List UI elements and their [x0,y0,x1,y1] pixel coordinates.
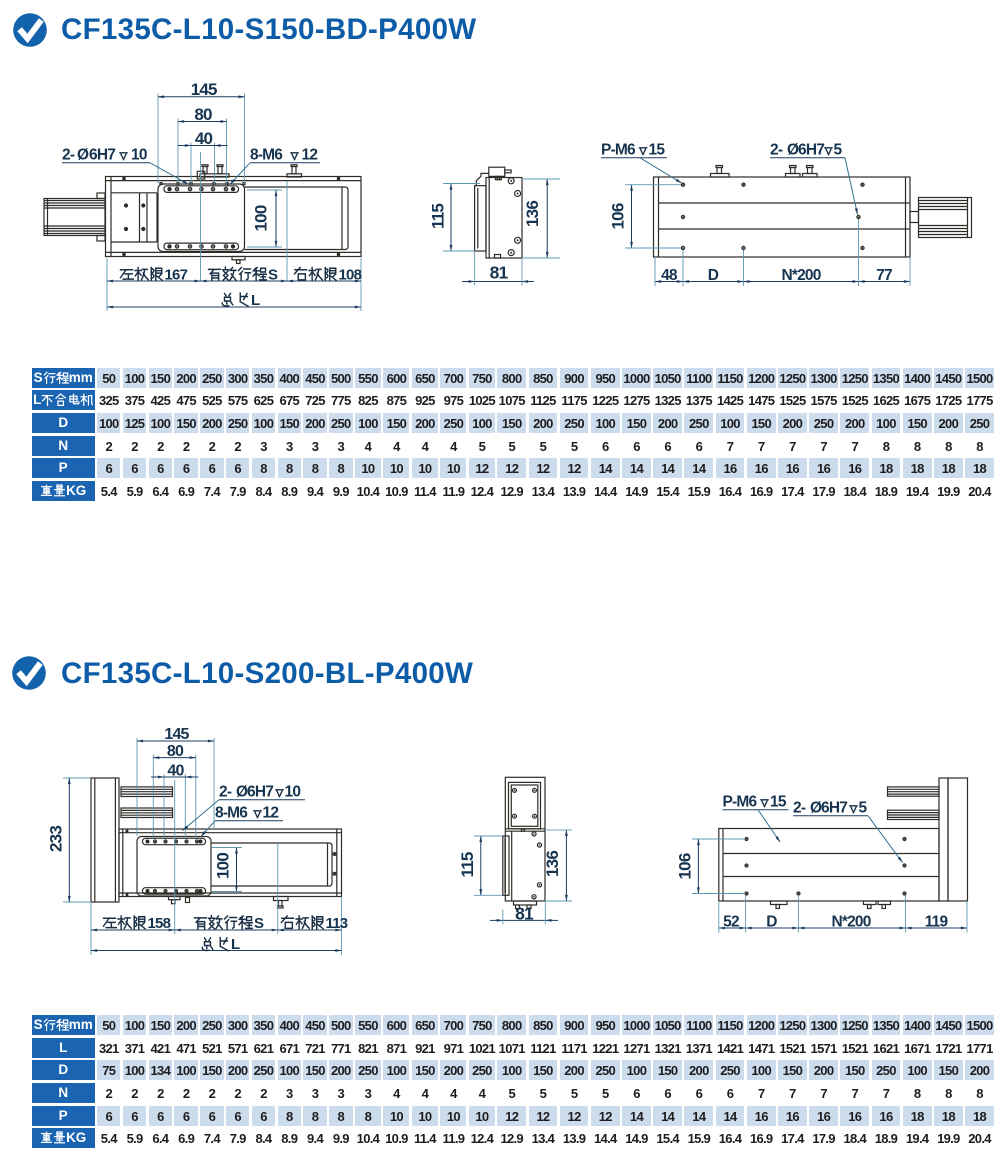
svg-text:L: L [231,936,240,953]
svg-text:108: 108 [339,267,362,284]
svg-text:100: 100 [214,853,233,879]
svg-text:Ø: Ø [77,147,89,164]
svg-text:106: 106 [609,203,628,229]
svg-text:80: 80 [194,105,212,124]
svg-text:6H7: 6H7 [89,147,115,164]
svg-text:10: 10 [131,147,147,164]
svg-text:2-: 2- [770,142,783,159]
svg-text:12: 12 [302,147,318,164]
svg-text:136: 136 [543,851,562,877]
svg-text:P-M6: P-M6 [601,142,636,159]
svg-text:5: 5 [859,800,868,817]
svg-text:81: 81 [490,263,509,283]
svg-text:106: 106 [675,853,694,879]
svg-text:6H7: 6H7 [798,142,824,159]
svg-text:S: S [254,915,264,932]
svg-text:119: 119 [925,914,949,931]
svg-text:52: 52 [723,914,739,931]
svg-text:P-M6: P-M6 [723,794,758,811]
svg-text:2-: 2- [62,147,75,164]
svg-text:L: L [251,292,260,309]
svg-text:8-M6: 8-M6 [215,805,248,822]
svg-text:100: 100 [252,205,271,231]
svg-text:113: 113 [326,915,348,932]
svg-text:81: 81 [515,903,534,923]
svg-text:77: 77 [876,267,892,284]
svg-text:115: 115 [458,852,477,877]
svg-text:S: S [268,267,278,284]
svg-text:2-: 2- [219,784,232,801]
svg-text:145: 145 [191,80,217,99]
svg-text:10: 10 [285,784,301,801]
svg-text:233: 233 [47,826,66,852]
svg-text:145: 145 [164,726,189,743]
svg-text:D: D [766,914,777,931]
svg-text:6H7: 6H7 [821,800,847,817]
svg-text:N*200: N*200 [831,914,870,931]
svg-text:6H7: 6H7 [247,784,273,801]
svg-text:N*200: N*200 [781,267,820,284]
svg-text:158: 158 [148,915,171,932]
svg-text:12: 12 [263,805,279,822]
svg-text:80: 80 [167,743,184,760]
svg-text:5: 5 [834,142,843,159]
svg-text:8-M6: 8-M6 [250,147,283,164]
svg-text:D: D [708,267,719,284]
svg-text:136: 136 [523,201,542,227]
svg-text:48: 48 [661,267,678,284]
svg-text:115: 115 [429,204,448,229]
svg-text:15: 15 [770,794,787,811]
svg-text:40: 40 [195,129,213,148]
svg-text:2-: 2- [793,800,806,817]
svg-text:15: 15 [649,142,666,159]
svg-text:167: 167 [165,267,188,284]
svg-text:40: 40 [167,762,184,779]
